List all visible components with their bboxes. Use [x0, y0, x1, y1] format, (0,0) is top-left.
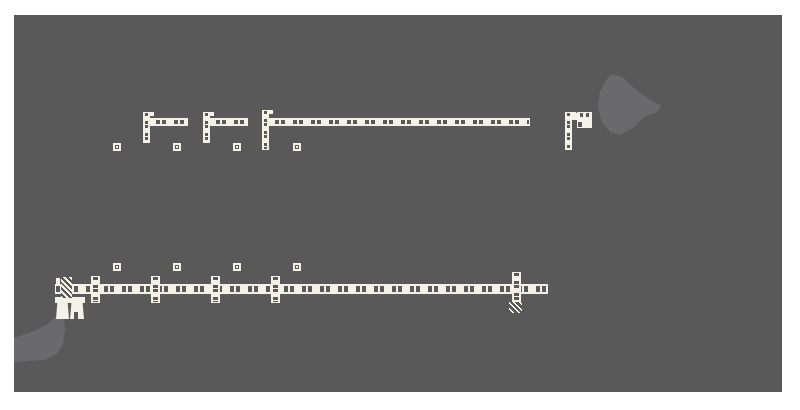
post-marker-lower-2[interactable]	[173, 263, 181, 271]
lower-main-wall[interactable]	[55, 284, 548, 294]
post-marker-upper-2[interactable]	[173, 143, 181, 151]
upper-main-wall[interactable]	[262, 118, 530, 126]
wall-cavity	[144, 120, 187, 124]
wall-cavity	[273, 277, 278, 302]
lower-left-end-tick	[56, 278, 60, 285]
wall-cavity	[567, 113, 570, 149]
corner-tick-2	[210, 112, 214, 116]
corner-tick-right	[572, 112, 576, 116]
wall-cavity	[56, 286, 547, 292]
lower-stud-stub-3[interactable]	[211, 276, 220, 303]
post-marker-upper-4[interactable]	[293, 143, 301, 151]
corner-tick-3	[269, 110, 273, 114]
post-marker-lower-4[interactable]	[293, 263, 301, 271]
wall-cavity	[264, 111, 267, 149]
lower-right-hatch-mark[interactable]	[509, 301, 522, 313]
filled-block-notch-2	[586, 113, 589, 117]
wall-cavity	[145, 113, 148, 142]
post-marker-lower-3[interactable]	[233, 263, 241, 271]
wall-cavity	[205, 113, 208, 142]
wall-cavity	[514, 273, 519, 301]
block-b-notch	[74, 312, 78, 319]
wall-cavity	[204, 120, 247, 124]
post-marker-upper-1[interactable]	[113, 143, 121, 151]
wall-cavity	[153, 277, 158, 302]
lower-stud-stub-1[interactable]	[91, 276, 100, 303]
upper-corner2-wall-vertical[interactable]	[203, 112, 210, 143]
wall-cavity	[263, 120, 529, 124]
drawing-objects-layer	[0, 0, 800, 410]
lower-left-hatched-stub[interactable]	[61, 277, 72, 298]
wall-cavity	[213, 277, 218, 302]
filled-block-notch-1	[580, 113, 583, 117]
lower-right-end-stub[interactable]	[512, 272, 521, 302]
filled-block-notch-3	[578, 122, 582, 127]
lower-left-block-a[interactable]	[56, 303, 69, 319]
upper-corner1-wall-vertical[interactable]	[143, 112, 150, 143]
page-background	[0, 0, 800, 410]
upper-main-wall-vertical[interactable]	[262, 110, 269, 150]
post-marker-upper-3[interactable]	[233, 143, 241, 151]
wall-cavity	[93, 277, 98, 302]
lower-stud-stub-2[interactable]	[151, 276, 160, 303]
lower-stud-stub-4[interactable]	[271, 276, 280, 303]
upper-right-wall-vertical[interactable]	[565, 112, 572, 150]
post-marker-lower-1[interactable]	[113, 263, 121, 271]
corner-tick-1	[150, 112, 154, 116]
